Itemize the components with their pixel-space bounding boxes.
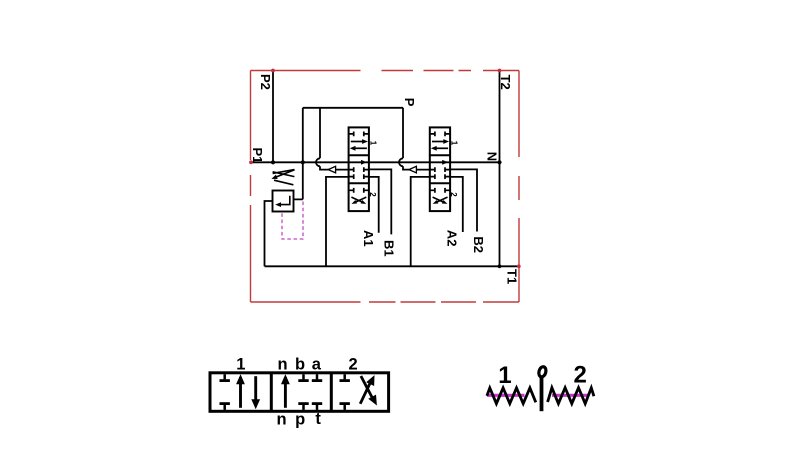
svg-text:1: 1 xyxy=(450,141,459,146)
svg-text:P: P xyxy=(402,98,417,107)
svg-text:a: a xyxy=(312,356,322,374)
svg-text:T1: T1 xyxy=(505,269,520,284)
svg-text:2: 2 xyxy=(449,192,458,197)
svg-text:2: 2 xyxy=(349,356,358,374)
svg-text:N: N xyxy=(484,152,499,161)
svg-text:B2: B2 xyxy=(471,236,486,253)
svg-text:2: 2 xyxy=(368,192,377,197)
svg-text:t: t xyxy=(315,410,321,428)
svg-text:P2: P2 xyxy=(258,74,273,90)
svg-text:n: n xyxy=(277,356,287,374)
svg-text:p: p xyxy=(295,410,305,428)
svg-text:P1: P1 xyxy=(250,148,265,164)
svg-text:B1: B1 xyxy=(382,240,397,257)
svg-text:b: b xyxy=(295,356,305,374)
svg-text:A1: A1 xyxy=(361,230,376,247)
svg-text:T2: T2 xyxy=(498,75,513,90)
svg-text:n: n xyxy=(277,411,287,429)
svg-text:2: 2 xyxy=(574,362,587,389)
svg-text:1: 1 xyxy=(236,356,245,374)
svg-text:1: 1 xyxy=(498,362,511,389)
svg-text:A2: A2 xyxy=(445,230,460,247)
svg-text:1: 1 xyxy=(368,141,377,146)
